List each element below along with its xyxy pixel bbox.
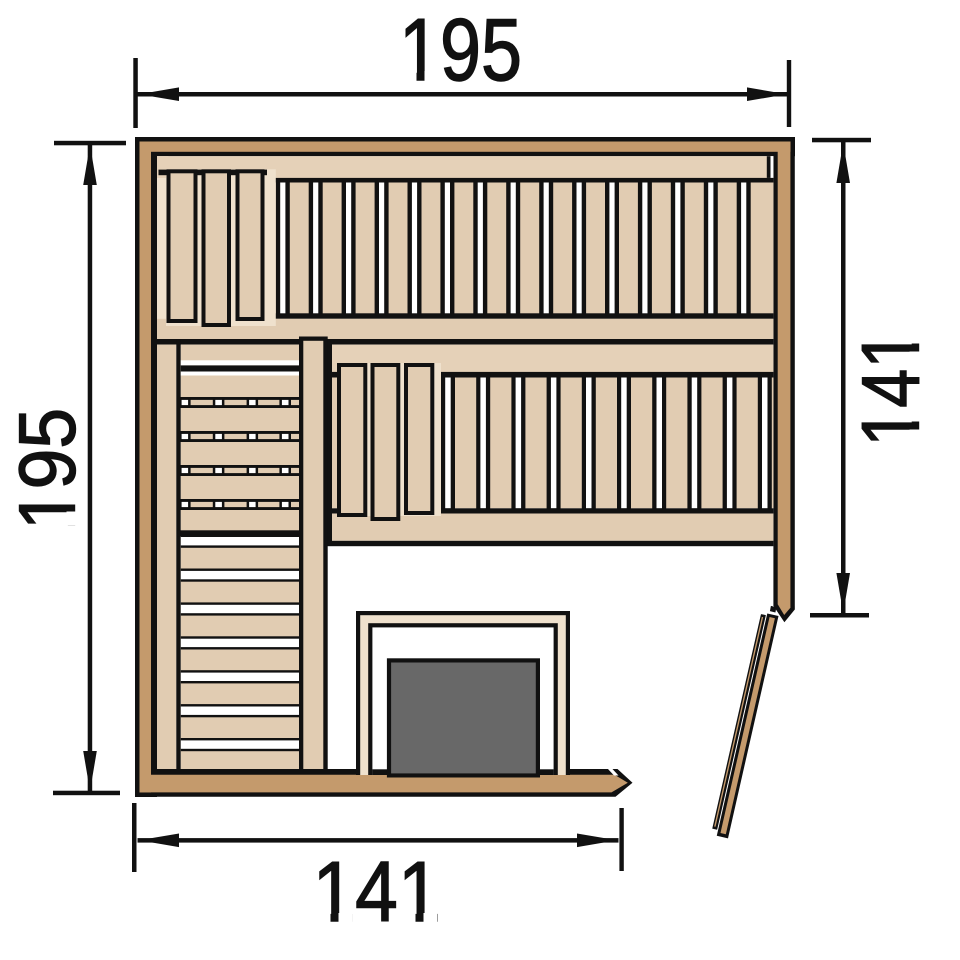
- svg-text:195: 195: [399, 0, 522, 99]
- svg-text:141: 141: [845, 330, 936, 447]
- svg-text:195: 195: [3, 408, 92, 530]
- svg-text:141: 141: [313, 845, 441, 940]
